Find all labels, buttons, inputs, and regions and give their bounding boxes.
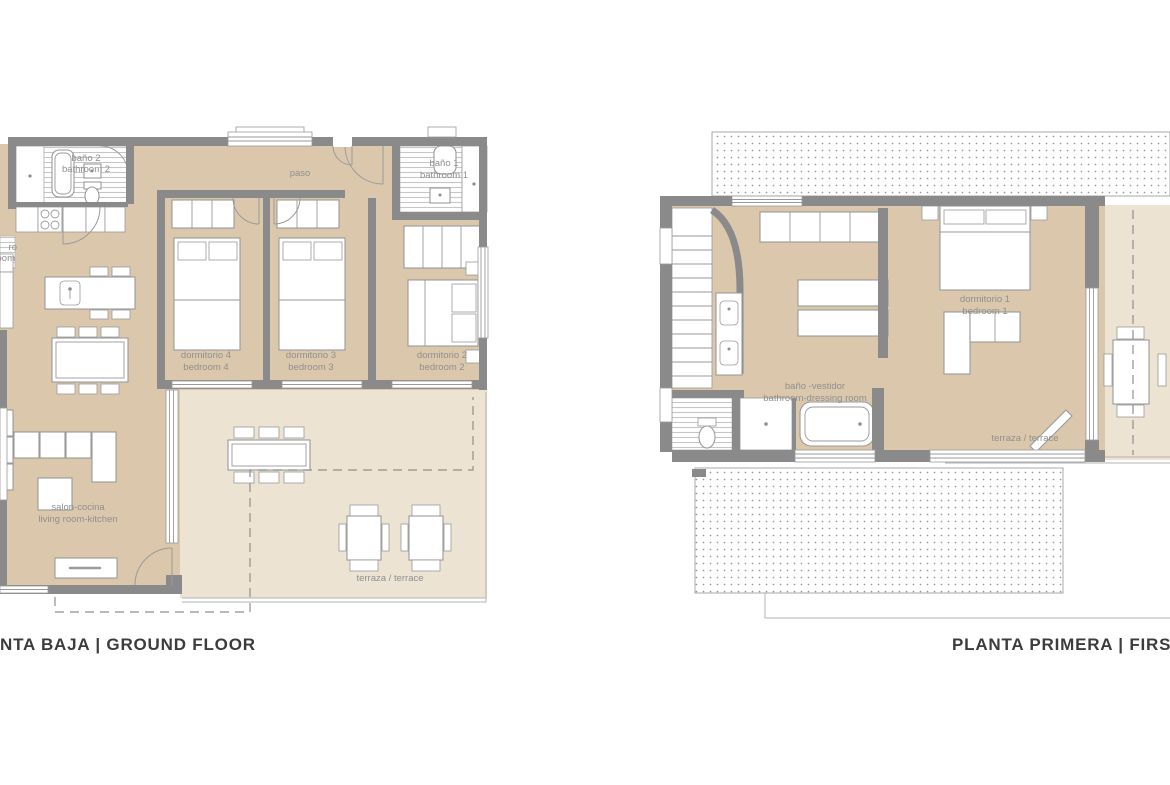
bathroom1-label-en: bathroom 1 xyxy=(420,170,468,181)
shower-icon xyxy=(740,398,792,450)
bedroom3-room xyxy=(274,198,345,350)
wardrobe-row xyxy=(798,310,888,336)
living-label-en: living room-kitchen xyxy=(38,514,117,525)
first-floor-title: PLANTA PRIMERA | FIRST FLOO xyxy=(952,635,1170,654)
bathroom-dressing-label-en: bathroom-dressing room xyxy=(763,393,867,404)
bed-icon xyxy=(279,238,345,350)
bedroom2-label-en: bedroom 2 xyxy=(419,362,464,373)
first-floor-plan: dormitorio 1 bedroom 1 baño -vestidor ba… xyxy=(660,132,1170,654)
bathroom-dressing-label-es: baño -vestidor xyxy=(785,381,845,392)
cut-room-label-en: oom xyxy=(0,253,15,264)
bed-icon xyxy=(922,206,1047,290)
ground-terrace-label: terraza / terrace xyxy=(356,573,423,584)
bedroom1-label-en: bedroom 1 xyxy=(962,306,1007,317)
bedroom3-label-en: bedroom 3 xyxy=(288,362,333,373)
living-label-es: salon-cocina xyxy=(51,502,105,513)
tv-cabinet xyxy=(55,558,117,578)
outdoor-table xyxy=(228,427,310,483)
first-terrace-label: terraza / terrace xyxy=(991,433,1058,444)
lower-roof-dotted-area xyxy=(695,468,1063,593)
bathroom2-label-es: baño 2 xyxy=(71,153,100,164)
ground-floor-plan: baño 2 bathroom 2 paso baño 1 bathroom 1… xyxy=(0,127,488,654)
sink-icon xyxy=(430,188,450,203)
bed-icon xyxy=(174,238,240,350)
roof-deck-dotted-area xyxy=(712,132,1170,196)
bedroom1-label-es: dormitorio 1 xyxy=(960,294,1010,305)
cut-room-label-es: ro xyxy=(9,242,17,253)
bathroom1-label-es: baño 1 xyxy=(429,158,458,169)
floorplan-canvas: baño 2 bathroom 2 paso baño 1 bathroom 1… xyxy=(0,0,1170,785)
wc-room xyxy=(672,398,732,450)
ground-floor-title: NTA BAJA | GROUND FLOOR xyxy=(0,635,256,654)
bedroom2-label-es: dormitorio 2 xyxy=(417,350,467,361)
dining-table xyxy=(52,327,128,394)
stove-icon xyxy=(38,207,62,232)
bathroom2-label-en: bathroom 2 xyxy=(62,164,110,175)
wardrobe-row xyxy=(798,280,888,306)
double-sink-vanity xyxy=(716,293,742,375)
floorplan-page: baño 2 bathroom 2 paso baño 1 bathroom 1… xyxy=(0,0,1170,785)
bedroom4-label-es: dormitorio 4 xyxy=(181,350,231,361)
bedroom4-label-en: bedroom 4 xyxy=(183,362,228,373)
bedroom3-label-es: dormitorio 3 xyxy=(286,350,336,361)
paso-label: paso xyxy=(290,168,311,179)
bathtub-icon xyxy=(800,402,874,446)
